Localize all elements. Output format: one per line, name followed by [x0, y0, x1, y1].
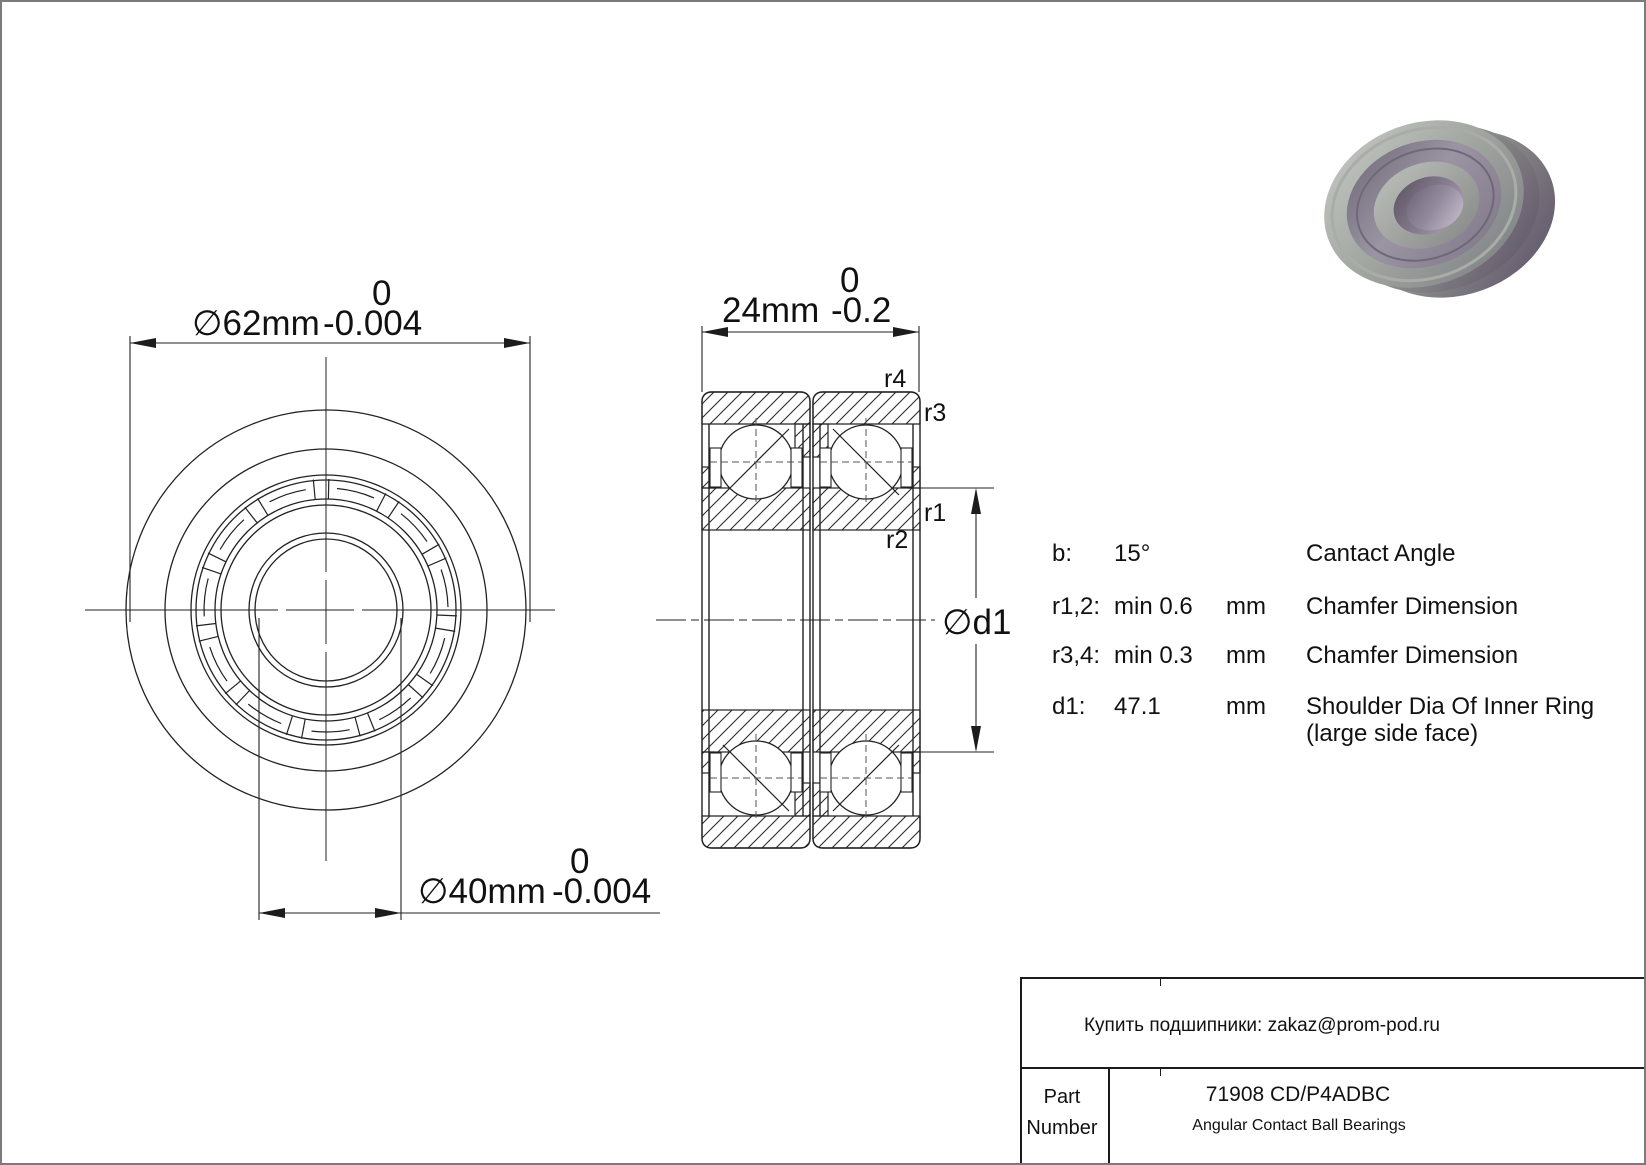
part-label-line1: Part [1044, 1086, 1081, 1109]
title-block-top-border [1020, 977, 1644, 979]
spec-desc-line2: (large side face) [1306, 720, 1478, 748]
dimension-62mm: ∅62mm -0.004 0 [130, 274, 530, 622]
spec-key: r1,2: [1052, 593, 1100, 621]
dim-d1-label: ∅d1 [942, 603, 1011, 642]
spec-value: 15° [1114, 540, 1150, 568]
label-r4: r4 [884, 365, 906, 393]
arrow-down-icon [971, 726, 981, 752]
spec-key: d1: [1052, 693, 1085, 721]
part-number: 71908 CD/P4ADBC [1206, 1083, 1390, 1107]
drawing-page: ∅62mm -0.004 0 ∅40mm -0.004 0 [0, 0, 1646, 1165]
dim-62-tol-top: 0 [372, 274, 391, 313]
arrow-right-icon [893, 327, 919, 337]
section-view [656, 392, 935, 848]
part-label-line2: Number [1026, 1117, 1097, 1140]
title-block-left-border [1020, 977, 1022, 1163]
part-type: Angular Contact Ball Bearings [1192, 1117, 1405, 1135]
front-view [85, 357, 555, 861]
label-r2: r2 [886, 526, 908, 554]
bearing-3d-image [1300, 84, 1578, 334]
dimension-d1: ∅d1 [915, 488, 1011, 752]
spec-desc: Shoulder Dia Of Inner Ring [1306, 693, 1594, 721]
spec-value: 47.1 [1114, 693, 1161, 721]
arrow-left-icon [259, 908, 285, 918]
spec-unit: mm [1226, 642, 1266, 670]
contact-line: Купить подшипники: zakaz@prom-pod.ru [1084, 1015, 1440, 1037]
arrow-up-icon [971, 488, 981, 514]
dim-40-tol-top: 0 [570, 842, 589, 881]
label-r1: r1 [924, 499, 946, 527]
arrow-right-icon [504, 338, 530, 348]
front-view-centerlines [85, 357, 555, 861]
dim-40-tol-bottom: -0.004 [552, 872, 651, 911]
spec-unit: mm [1226, 693, 1266, 721]
title-block-tick-top [1160, 977, 1161, 986]
dim-40-label: ∅40mm [418, 872, 546, 911]
title-block-col-divider [1108, 1067, 1110, 1163]
title-block-row-divider [1020, 1067, 1644, 1069]
arrow-right-icon [375, 908, 401, 918]
spec-value: min 0.6 [1114, 593, 1193, 621]
spec-value: min 0.3 [1114, 642, 1193, 670]
spec-key: b: [1052, 540, 1072, 568]
spec-desc: Chamfer Dimension [1306, 593, 1518, 621]
title-block-tick-mid [1160, 1067, 1161, 1076]
arrow-left-icon [130, 338, 156, 348]
dimension-40mm: ∅40mm -0.004 0 [259, 618, 660, 920]
technical-drawing: ∅62mm -0.004 0 ∅40mm -0.004 0 [0, 0, 1646, 1165]
label-r3: r3 [924, 399, 946, 427]
dim-24-tol-top: 0 [840, 261, 859, 300]
spec-key: r3,4: [1052, 642, 1100, 670]
spec-desc: Chamfer Dimension [1306, 642, 1518, 670]
spec-unit: mm [1226, 593, 1266, 621]
spec-desc: Cantact Angle [1306, 540, 1455, 568]
dim-24-label: 24mm [722, 291, 819, 330]
dim-62-label: ∅62mm [192, 304, 320, 343]
